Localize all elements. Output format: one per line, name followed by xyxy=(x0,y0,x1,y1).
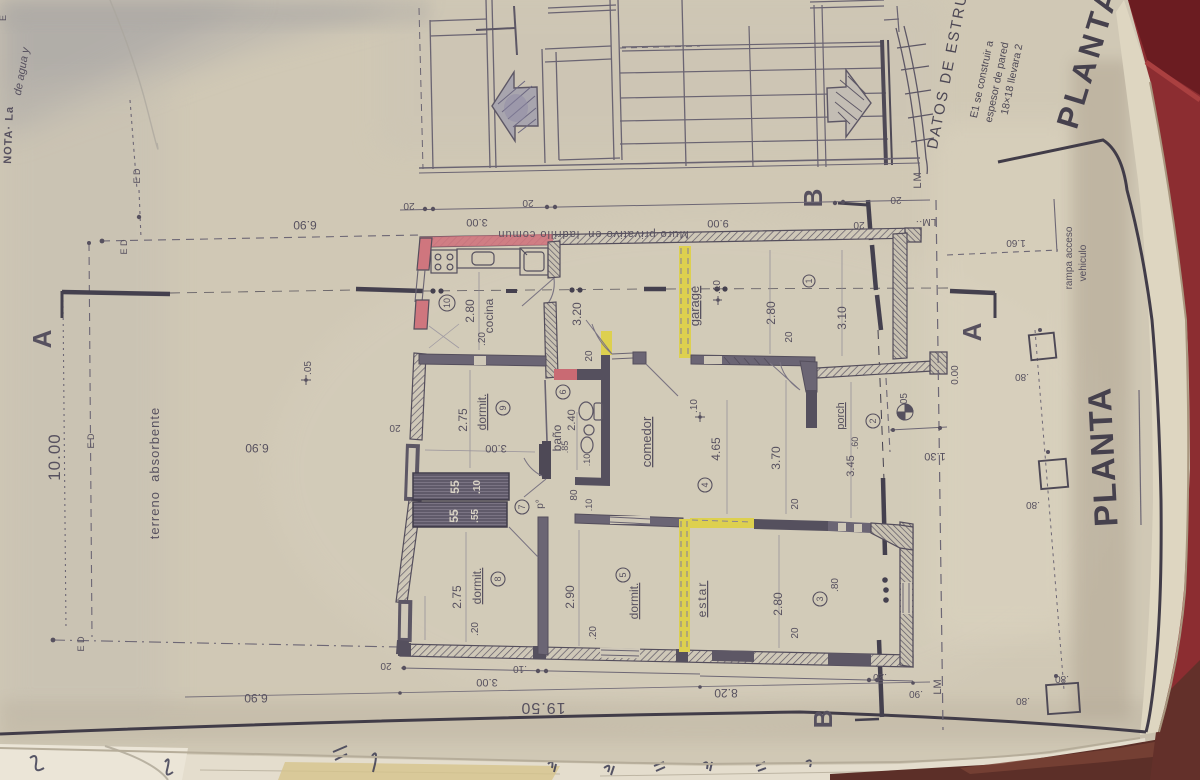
svg-text:1.60: 1.60 xyxy=(1006,237,1026,248)
svg-text:3.20: 3.20 xyxy=(570,302,584,326)
svg-text:5: 5 xyxy=(618,572,628,577)
svg-text:E D: E D xyxy=(119,239,129,255)
svg-text:B: B xyxy=(798,189,828,208)
svg-text:LM··: LM·· xyxy=(916,216,937,227)
svg-text:A: A xyxy=(27,329,57,348)
svg-text:estar: estar xyxy=(695,581,709,618)
svg-text:2.80: 2.80 xyxy=(764,301,778,325)
svg-text:.10: .10 xyxy=(582,454,592,467)
svg-text:20: 20 xyxy=(403,200,415,211)
svg-text:.55: .55 xyxy=(470,509,481,523)
svg-text:6.90: 6.90 xyxy=(293,218,317,232)
svg-text:.10: .10 xyxy=(712,280,723,294)
svg-text:E D: E D xyxy=(132,168,142,184)
svg-text:3.00: 3.00 xyxy=(476,676,497,688)
svg-text:6.90: 6.90 xyxy=(245,441,269,455)
svg-text:3: 3 xyxy=(815,596,825,601)
svg-text:3.45: 3.45 xyxy=(845,455,857,476)
svg-text:porch: porch xyxy=(835,402,847,430)
svg-text:6.90: 6.90 xyxy=(244,691,268,705)
svg-text:.60: .60 xyxy=(850,437,860,450)
svg-text:.10: .10 xyxy=(472,480,483,494)
svg-text:.10: .10 xyxy=(584,499,594,512)
svg-text:.85: .85 xyxy=(560,441,570,454)
svg-text:LM: LM xyxy=(932,679,944,694)
svg-text:2.90: 2.90 xyxy=(563,585,577,609)
svg-text:3.10: 3.10 xyxy=(835,306,849,330)
svg-text:10.00: 10.00 xyxy=(45,433,64,481)
svg-text:3.70: 3.70 xyxy=(769,446,783,470)
svg-text:2.75: 2.75 xyxy=(456,408,470,432)
svg-text:NOTA· La: NOTA· La xyxy=(2,106,16,164)
svg-text:.20: .20 xyxy=(873,671,887,682)
svg-text:B: B xyxy=(808,710,838,729)
svg-text:dormit.: dormit. xyxy=(470,568,484,605)
svg-text:PLANTA: PLANTA xyxy=(1080,386,1124,528)
svg-text:20: 20 xyxy=(790,627,801,639)
svg-text:20: 20 xyxy=(853,219,865,230)
svg-text:8.20: 8.20 xyxy=(714,686,738,700)
svg-text:Muro privativo en ladrillo co: Muro privativo en ladrillo comun xyxy=(497,228,688,240)
svg-text:.80: .80 xyxy=(1015,371,1029,382)
svg-text:10: 10 xyxy=(442,298,452,308)
svg-text:garage: garage xyxy=(687,286,702,326)
svg-text:E D: E D xyxy=(76,636,86,652)
svg-text:terreno absorbente: terreno absorbente xyxy=(147,407,162,539)
svg-text:.10: .10 xyxy=(513,663,527,674)
svg-text:.80: .80 xyxy=(1026,499,1040,510)
svg-text:3.00: 3.00 xyxy=(466,216,487,228)
svg-text:2.40: 2.40 xyxy=(566,409,578,430)
svg-text:.20: .20 xyxy=(470,622,481,636)
svg-text:19.50: 19.50 xyxy=(520,699,565,716)
svg-text:.80: .80 xyxy=(830,578,841,592)
svg-text:.10: .10 xyxy=(689,399,700,413)
svg-text:comedor: comedor xyxy=(639,416,654,467)
svg-text:.80: .80 xyxy=(1055,673,1069,684)
svg-text:E: E xyxy=(0,15,8,21)
svg-text:A: A xyxy=(957,322,987,341)
svg-text:E D: E D xyxy=(86,433,96,449)
svg-text:9: 9 xyxy=(498,405,508,410)
svg-text:p°: p° xyxy=(535,499,546,509)
svg-text:55: 55 xyxy=(448,480,462,494)
svg-text:3.00: 3.00 xyxy=(485,442,506,454)
svg-text:80: 80 xyxy=(569,489,580,501)
svg-text:dormit.: dormit. xyxy=(475,394,489,431)
svg-text:0.00: 0.00 xyxy=(950,365,961,385)
svg-text:rampa acceso: rampa acceso xyxy=(1064,226,1075,289)
svg-text:.90: .90 xyxy=(909,688,923,699)
svg-text:20: 20 xyxy=(380,660,392,671)
svg-text:9.00: 9.00 xyxy=(707,217,728,229)
svg-text:6: 6 xyxy=(558,389,568,394)
svg-text:.80: .80 xyxy=(1016,695,1030,706)
svg-text:20: 20 xyxy=(890,194,902,205)
svg-text:20: 20 xyxy=(522,197,534,208)
svg-text:dormit.: dormit. xyxy=(627,583,641,620)
svg-text:20: 20 xyxy=(784,331,795,343)
svg-text:2: 2 xyxy=(868,418,878,423)
svg-text:7: 7 xyxy=(517,504,527,509)
svg-text:20: 20 xyxy=(389,422,401,433)
svg-text:2.80: 2.80 xyxy=(463,299,477,323)
svg-text:cocina: cocina xyxy=(482,298,496,333)
svg-text:20: 20 xyxy=(790,498,801,510)
svg-text:4.65: 4.65 xyxy=(709,437,723,461)
svg-text:2.80: 2.80 xyxy=(771,592,785,616)
svg-text:.05: .05 xyxy=(899,393,910,407)
svg-text:1.30: 1.30 xyxy=(924,450,945,462)
svg-text:2.75: 2.75 xyxy=(450,585,464,609)
svg-text:55: 55 xyxy=(447,509,461,523)
svg-text:8: 8 xyxy=(493,576,503,581)
svg-text:20: 20 xyxy=(584,350,595,362)
svg-text:vehiculo: vehiculo xyxy=(1078,244,1089,281)
svg-text:.20: .20 xyxy=(477,332,488,346)
svg-text:LM: LM xyxy=(912,171,924,188)
svg-text:4: 4 xyxy=(700,482,710,487)
svg-text:1: 1 xyxy=(804,278,814,283)
svg-text:.05: .05 xyxy=(303,361,314,375)
svg-text:.20: .20 xyxy=(588,626,599,640)
